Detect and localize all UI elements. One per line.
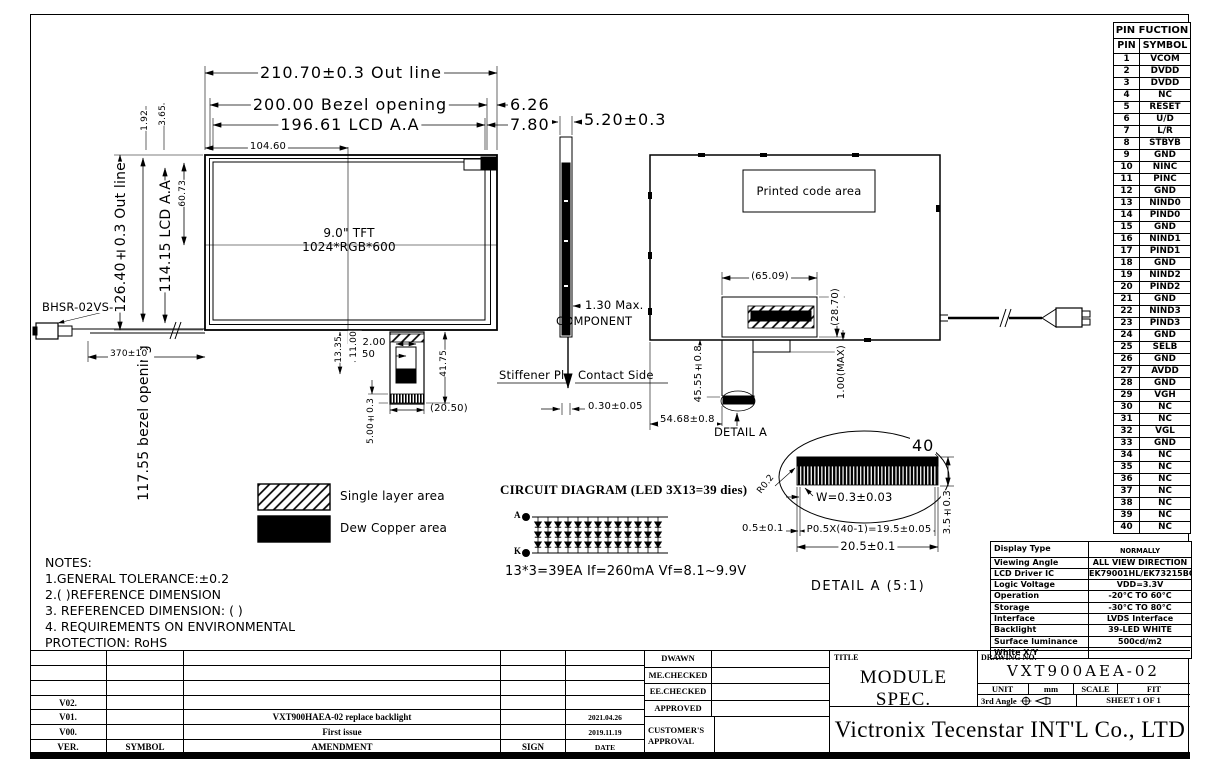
spec-row: Backlight39-LED WHITE xyxy=(991,625,1191,636)
pin-number: 18 xyxy=(1114,258,1140,269)
revision-cell: V01. xyxy=(30,710,107,724)
revision-cell xyxy=(501,651,566,665)
revision-cell xyxy=(184,681,501,695)
pin-row: 40NC xyxy=(1114,522,1190,533)
revision-cell xyxy=(107,651,184,665)
pin-number: 32 xyxy=(1114,426,1140,437)
drawing-number: VXT900AEA-02 xyxy=(977,662,1190,680)
dim-500: 5.00±0.3 xyxy=(365,398,379,444)
pin-symbol: PIND0 xyxy=(1140,210,1190,221)
pin-row: 9GND xyxy=(1114,150,1190,162)
notes-block: NOTES: 1.GENERAL TOLERANCE:±0.2 2.( )REF… xyxy=(45,555,295,651)
pin-number: 20 xyxy=(1114,282,1140,293)
revision-cell xyxy=(501,666,566,680)
dim-pitch: P0.5X(40-1)=19.5±0.05 xyxy=(805,525,934,536)
pin-number: 38 xyxy=(1114,498,1140,509)
third-angle-projection-icon xyxy=(1020,696,1052,706)
spec-value: VDD=3.3V xyxy=(1089,580,1191,590)
pin-number: 8 xyxy=(1114,138,1140,149)
revision-cell xyxy=(566,681,645,695)
revision-row: V00.First issue2019.11.19 xyxy=(30,725,645,740)
revision-cell xyxy=(107,696,184,710)
pin-row: 14PIND0 xyxy=(1114,210,1190,222)
revision-cell xyxy=(501,696,566,710)
connector-label: BHSR-02VS- xyxy=(40,301,115,313)
pin-number: 25 xyxy=(1114,342,1140,353)
notes-line: NOTES: xyxy=(45,555,295,571)
pin-row: 27AVDD xyxy=(1114,366,1190,378)
revision-cell: VER. xyxy=(30,740,107,754)
circuit-diagram-title: CIRCUIT DIAGRAM (LED 3X13=39 dies) xyxy=(500,483,747,497)
pin-row: 15GND xyxy=(1114,222,1190,234)
pin-row: 8STBYB xyxy=(1114,138,1190,150)
spec-label: Interface xyxy=(991,614,1089,624)
detail-a-caption: DETAIL A (5:1) xyxy=(811,580,925,594)
contact-side-label: Contact Side xyxy=(578,369,654,381)
revision-cell xyxy=(107,725,184,739)
pin-number: 29 xyxy=(1114,390,1140,401)
approval-row: CUSTOMER'S APPROVAL xyxy=(645,717,830,754)
revision-row xyxy=(30,651,645,666)
pin-number: 28 xyxy=(1114,378,1140,389)
revision-row: V02. xyxy=(30,696,645,711)
pin-number: 36 xyxy=(1114,474,1140,485)
approval-row: EE.CHECKED xyxy=(645,684,830,701)
pin-symbol: NC xyxy=(1140,462,1190,473)
dim-v-bezel: 117.55 bezel opening xyxy=(135,345,154,501)
pin-symbol: NIND3 xyxy=(1140,306,1190,317)
third-angle-label: 3rd Angle xyxy=(981,696,1017,707)
pin-symbol: NC xyxy=(1140,486,1190,497)
pin-symbol: NC xyxy=(1140,90,1190,101)
pin-symbol: GND xyxy=(1140,186,1190,197)
pin-row: 35NC xyxy=(1114,462,1190,474)
detail-pin-count: 40 xyxy=(910,437,936,454)
component-max-label: 1.30 Max. xyxy=(583,299,646,311)
dim-aa-width: 196.61 LCD A.A xyxy=(278,116,421,133)
revision-cell: V00. xyxy=(30,725,107,739)
dim-1335: 13.35 xyxy=(333,336,347,363)
pin-symbol: SELB xyxy=(1140,342,1190,353)
pin-number: 9 xyxy=(1114,150,1140,161)
approval-row: APPROVED xyxy=(645,701,830,718)
pin-number: 1 xyxy=(1114,54,1140,65)
pin-function-table: PIN FUCTION PIN SYMBOL 1VCOM2DVDD3DVDD4N… xyxy=(1113,22,1191,534)
revision-cell: V02. xyxy=(30,696,107,710)
screen-size-label: 9.0" TFT xyxy=(323,227,374,240)
pin-number: 22 xyxy=(1114,306,1140,317)
pin-number: 4 xyxy=(1114,90,1140,101)
pin-number: 23 xyxy=(1114,318,1140,329)
revision-cell: VXT900HAEA-02 replace backlight xyxy=(184,710,501,724)
revision-table: V02.V01.VXT900HAEA-02 replace backlight2… xyxy=(30,650,645,754)
me-checked-label: ME.CHECKED xyxy=(645,668,712,684)
revision-cell xyxy=(566,696,645,710)
legend-dew-copper-label: Dew Copper area xyxy=(340,522,447,535)
revision-cell: SIGN xyxy=(501,740,566,754)
spec-row: Logic VoltageVDD=3.3V xyxy=(991,580,1191,591)
spec-value: LVDS Interface xyxy=(1089,614,1191,624)
pin-row: 30NC xyxy=(1114,402,1190,414)
spec-row: Viewing AngleALL VIEW DIRECTION xyxy=(991,558,1191,569)
dim-35: 3.5±0.3 xyxy=(941,490,956,534)
pin-row: 28GND xyxy=(1114,378,1190,390)
pin-symbol: U/D xyxy=(1140,114,1190,125)
pin-symbol: GND xyxy=(1140,354,1190,365)
revision-cell xyxy=(501,710,566,724)
pin-number: 34 xyxy=(1114,450,1140,461)
revision-cell xyxy=(501,681,566,695)
title-label: TITLE xyxy=(834,653,858,662)
spec-row: Display TypeNORMALLY BLACK,TRANSMISSIVE xyxy=(991,542,1191,558)
revision-cell: DATE xyxy=(566,740,645,754)
drawing-no-label: DRAWING NO. xyxy=(981,653,1037,662)
pin-row: 33GND xyxy=(1114,438,1190,450)
pin-row: 26GND xyxy=(1114,354,1190,366)
pin-symbol: NC xyxy=(1140,414,1190,425)
spec-label: LCD Driver IC xyxy=(991,569,1089,579)
notes-line: 3. REFERENCED DIMENSION: ( ) xyxy=(45,603,295,619)
pin-symbol: NC xyxy=(1140,474,1190,485)
pin-number: 6 xyxy=(1114,114,1140,125)
pin-number: 24 xyxy=(1114,330,1140,341)
circuit-anode-label: A xyxy=(514,511,521,521)
dim-205: 20.5±0.1 xyxy=(838,540,897,552)
pin-symbol: NINC xyxy=(1140,162,1190,173)
revision-cell: SYMBOL xyxy=(107,740,184,754)
revision-cell xyxy=(107,666,184,680)
revision-cell: 2021.04.26 xyxy=(566,710,645,724)
pin-row: 36NC xyxy=(1114,474,1190,486)
pin-number: 2 xyxy=(1114,66,1140,77)
revision-cell: First issue xyxy=(184,725,501,739)
dim-1100: 11.00 xyxy=(348,331,362,358)
legend-single-layer-label: Single layer area xyxy=(340,490,445,503)
spec-value: 500cd/m2 xyxy=(1089,637,1191,647)
revision-cell xyxy=(107,710,184,724)
spec-value: ALL VIEW DIRECTION xyxy=(1089,558,1191,568)
approval-table: DWAWN ME.CHECKED EE.CHECKED APPROVED CUS… xyxy=(645,650,830,754)
pin-row: 10NINC xyxy=(1114,162,1190,174)
pin-row: 7L/R xyxy=(1114,126,1190,138)
spec-row: Storage Temperature-30°C TO 80°C xyxy=(991,603,1191,614)
pin-row: 25SELB xyxy=(1114,342,1190,354)
notes-line: 2.( )REFERENCE DIMENSION xyxy=(45,587,295,603)
pin-row: 23PIND3 xyxy=(1114,318,1190,330)
dim-outline-width: 210.70±0.3 Out line xyxy=(258,64,444,81)
revision-header-row: VER.SYMBOLAMENDMENTSIGNDATE xyxy=(30,740,645,754)
detail-a-callout-label: DETAIL A xyxy=(712,426,769,438)
pin-symbol: NIND1 xyxy=(1140,234,1190,245)
dim-thickness: 5.20±0.3 xyxy=(582,111,668,128)
spec-value: -20°C TO 60°C xyxy=(1089,591,1191,601)
pin-symbol: NC xyxy=(1140,522,1190,533)
dim-v-outline: 126.40±0.3 Out line xyxy=(112,162,131,313)
revision-cell xyxy=(30,651,107,665)
circuit-cathode-label: K xyxy=(514,547,521,557)
pin-table-title: PIN FUCTION xyxy=(1114,23,1190,39)
pin-number: 3 xyxy=(1114,78,1140,89)
dim-v-aa: 114.15 LCD A.A xyxy=(157,180,176,292)
pin-row: 34NC xyxy=(1114,450,1190,462)
stiffener-label: Stiffener Pl xyxy=(499,369,564,381)
pin-table-body: 1VCOM2DVDD3DVDD4NC5RESET6U/D7L/R8STBYB9G… xyxy=(1114,54,1190,533)
pin-row: 32VGL xyxy=(1114,426,1190,438)
printed-code-area-label: Printed code area xyxy=(757,185,862,197)
pin-symbol: DVDD xyxy=(1140,66,1190,77)
notes-line: 1.GENERAL TOLERANCE:±0.2 xyxy=(45,571,295,587)
pin-row: 11PINC xyxy=(1114,174,1190,186)
pin-row: 6U/D xyxy=(1114,114,1190,126)
dim-4555: 45.55±0.8 xyxy=(692,345,707,402)
spec-label: Backlight xyxy=(991,625,1089,635)
company-name: Victronix Tecenstar INT'L Co., LTD xyxy=(830,706,1190,753)
dim-2870: (28.70) xyxy=(829,288,844,326)
pin-number: 7 xyxy=(1114,126,1140,137)
spec-value: -30°C TO 80°C xyxy=(1089,603,1191,613)
pin-symbol: GND xyxy=(1140,150,1190,161)
pin-symbol: PIND3 xyxy=(1140,318,1190,329)
pin-row: 37NC xyxy=(1114,486,1190,498)
pin-row: 16NIND1 xyxy=(1114,234,1190,246)
dim-2050: (20.50) xyxy=(428,404,470,415)
pin-row: 4NC xyxy=(1114,90,1190,102)
dim-4175: 41.75 xyxy=(438,350,452,377)
revision-cell xyxy=(501,725,566,739)
pin-number: 19 xyxy=(1114,270,1140,281)
pin-symbol: GND xyxy=(1140,222,1190,233)
pin-row: 38NC xyxy=(1114,498,1190,510)
approved-sign-cell xyxy=(712,701,830,717)
pin-symbol: NIND2 xyxy=(1140,270,1190,281)
screen-resolution-label: 1024*RGB*600 xyxy=(302,241,396,254)
approval-row: DWAWN xyxy=(645,651,830,668)
pin-symbol: GND xyxy=(1140,330,1190,341)
pin-symbol: NC xyxy=(1140,498,1190,509)
notes-line: 4. REQUIREMENTS ON ENVIRONMENTAL xyxy=(45,619,295,635)
spec-value: 39-LED WHITE xyxy=(1089,625,1191,635)
pin-symbol: NC xyxy=(1140,450,1190,461)
pin-number: 13 xyxy=(1114,198,1140,209)
revision-cell xyxy=(184,651,501,665)
dim-5468: 54.68±0.8 xyxy=(658,415,717,426)
dim-05: 0.5±0.1 xyxy=(740,524,786,535)
spec-label: Operation Temperature xyxy=(991,591,1089,601)
dim-6509: (65.09) xyxy=(749,272,791,283)
pin-symbol: NC xyxy=(1140,510,1190,521)
pin-symbol: GND xyxy=(1140,438,1190,449)
revision-cell xyxy=(30,681,107,695)
module-spec-title: MODULE SPEC. xyxy=(830,667,977,711)
pin-symbol: VCOM xyxy=(1140,54,1190,65)
pin-symbol: PIND2 xyxy=(1140,282,1190,293)
pin-row: 20PIND2 xyxy=(1114,282,1190,294)
pin-number: 17 xyxy=(1114,246,1140,257)
revision-cell xyxy=(184,696,501,710)
spec-label: Storage Temperature xyxy=(991,603,1089,613)
pin-symbol: VGH xyxy=(1140,390,1190,401)
pin-symbol: PINC xyxy=(1140,174,1190,185)
pin-row: 13NIND0 xyxy=(1114,198,1190,210)
spec-value: EK79001HL/EK73215BCGA xyxy=(1089,569,1191,579)
pin-row: 21GND xyxy=(1114,294,1190,306)
pin-number: 39 xyxy=(1114,510,1140,521)
circuit-spec-label: 13*3=39EA If=260mA Vf=8.1~9.9V xyxy=(505,565,746,579)
customer-approval-label: CUSTOMER'S APPROVAL xyxy=(645,717,715,754)
pin-column-header: PIN xyxy=(1114,39,1140,53)
pin-number: 33 xyxy=(1114,438,1140,449)
pin-row: 29VGH xyxy=(1114,390,1190,402)
pin-number: 26 xyxy=(1114,354,1140,365)
approval-row: ME.CHECKED xyxy=(645,668,830,685)
drawing-sheet: 210.70±0.3 Out line 200.00 Bezel opening… xyxy=(0,0,1210,779)
pin-table-header: PIN SYMBOL xyxy=(1114,39,1190,54)
me-checked-sign-cell xyxy=(712,668,830,684)
pin-row: 12GND xyxy=(1114,186,1190,198)
revision-row: V01.VXT900HAEA-02 replace backlight2021.… xyxy=(30,710,645,725)
drawn-label: DWAWN xyxy=(645,651,712,667)
ee-checked-label: EE.CHECKED xyxy=(645,684,712,700)
dim-192: 1.92 xyxy=(139,110,153,131)
pin-symbol: DVDD xyxy=(1140,78,1190,89)
dim-626: 6.26 xyxy=(508,96,552,113)
pin-row: 22NIND3 xyxy=(1114,306,1190,318)
revision-cell: 2019.11.19 xyxy=(566,725,645,739)
pin-row: 18GND xyxy=(1114,258,1190,270)
pin-number: 40 xyxy=(1114,522,1140,533)
dim-365: 3.65 xyxy=(157,105,171,126)
pin-symbol: GND xyxy=(1140,294,1190,305)
spec-label: Logic Voltage xyxy=(991,580,1089,590)
notes-line: PROTECTION: RoHS xyxy=(45,635,295,651)
pin-number: 14 xyxy=(1114,210,1140,221)
revision-cell xyxy=(30,666,107,680)
dim-030: 0.30±0.05 xyxy=(586,402,645,413)
pin-row: 31NC xyxy=(1114,414,1190,426)
pin-number: 30 xyxy=(1114,402,1140,413)
pin-symbol: GND xyxy=(1140,258,1190,269)
pin-symbol: GND xyxy=(1140,378,1190,389)
ee-checked-sign-cell xyxy=(712,684,830,700)
pin-number: 15 xyxy=(1114,222,1140,233)
spec-row: LCD Driver ICEK79001HL/EK73215BCGA xyxy=(991,569,1191,580)
symbol-column-header: SYMBOL xyxy=(1140,39,1190,53)
pin-row: 5RESET xyxy=(1114,102,1190,114)
pin-number: 11 xyxy=(1114,174,1140,185)
spec-table: Display TypeNORMALLY BLACK,TRANSMISSIVEV… xyxy=(990,541,1192,659)
pin-row: 24GND xyxy=(1114,330,1190,342)
pin-number: 5 xyxy=(1114,102,1140,113)
pin-symbol: NC xyxy=(1140,402,1190,413)
pin-row: 2DVDD xyxy=(1114,66,1190,78)
pin-symbol: RESET xyxy=(1140,102,1190,113)
dim-wire-length: 370±10 xyxy=(108,350,149,360)
spec-label: Viewing Angle xyxy=(991,558,1089,568)
drawing-no-cell: DRAWING NO. VXT900AEA-02 xyxy=(977,650,1190,684)
pin-symbol: AVDD xyxy=(1140,366,1190,377)
pin-symbol: STBYB xyxy=(1140,138,1190,149)
pin-symbol: L/R xyxy=(1140,126,1190,137)
revision-cell xyxy=(566,666,645,680)
dim-w: W=0.3±0.03 xyxy=(814,491,895,503)
pin-row: 3DVDD xyxy=(1114,78,1190,90)
dim-780: 7.80 xyxy=(508,116,552,133)
dim-10460: 104.60 xyxy=(248,142,288,153)
spec-value: NORMALLY BLACK,TRANSMISSIVE xyxy=(1089,542,1191,557)
spec-row: Surface luminance500cd/m2 xyxy=(991,637,1191,648)
pin-row: 17PIND1 xyxy=(1114,246,1190,258)
pin-row: 1VCOM xyxy=(1114,54,1190,66)
pin-row: 39NC xyxy=(1114,510,1190,522)
pin-number: 10 xyxy=(1114,162,1140,173)
spec-row: Operation Temperature-20°C TO 60°C xyxy=(991,591,1191,602)
dim-100max: 1.00(MAX) xyxy=(835,345,850,399)
pin-row: 19NIND2 xyxy=(1114,270,1190,282)
approved-label: APPROVED xyxy=(645,701,712,717)
pin-symbol: PIND1 xyxy=(1140,246,1190,257)
pin-number: 37 xyxy=(1114,486,1140,497)
title-cell: TITLE MODULE SPEC. xyxy=(830,650,978,707)
revision-cell xyxy=(107,681,184,695)
pin-number: 31 xyxy=(1114,414,1140,425)
revision-cell xyxy=(566,651,645,665)
pin-number: 27 xyxy=(1114,366,1140,377)
pin-number: 21 xyxy=(1114,294,1140,305)
revision-cell: AMENDMENT xyxy=(184,740,501,754)
spec-label: Display Type xyxy=(991,542,1089,557)
revision-row xyxy=(30,681,645,696)
pin-symbol: VGL xyxy=(1140,426,1190,437)
revision-row xyxy=(30,666,645,681)
pin-number: 35 xyxy=(1114,462,1140,473)
pin-symbol: NIND0 xyxy=(1140,198,1190,209)
drawn-sign-cell xyxy=(712,651,830,667)
pin-number: 16 xyxy=(1114,234,1140,245)
customer-sign-cell xyxy=(715,717,830,754)
component-label: COMPONENT xyxy=(556,315,632,327)
spec-label: Surface luminance xyxy=(991,637,1089,647)
pin-number: 12 xyxy=(1114,186,1140,197)
revision-cell xyxy=(184,666,501,680)
dim-6073: 60.73 xyxy=(177,180,191,207)
dim-bezel-width: 200.00 Bezel opening xyxy=(251,96,449,113)
spec-row: InterfaceLVDS Interface xyxy=(991,614,1191,625)
